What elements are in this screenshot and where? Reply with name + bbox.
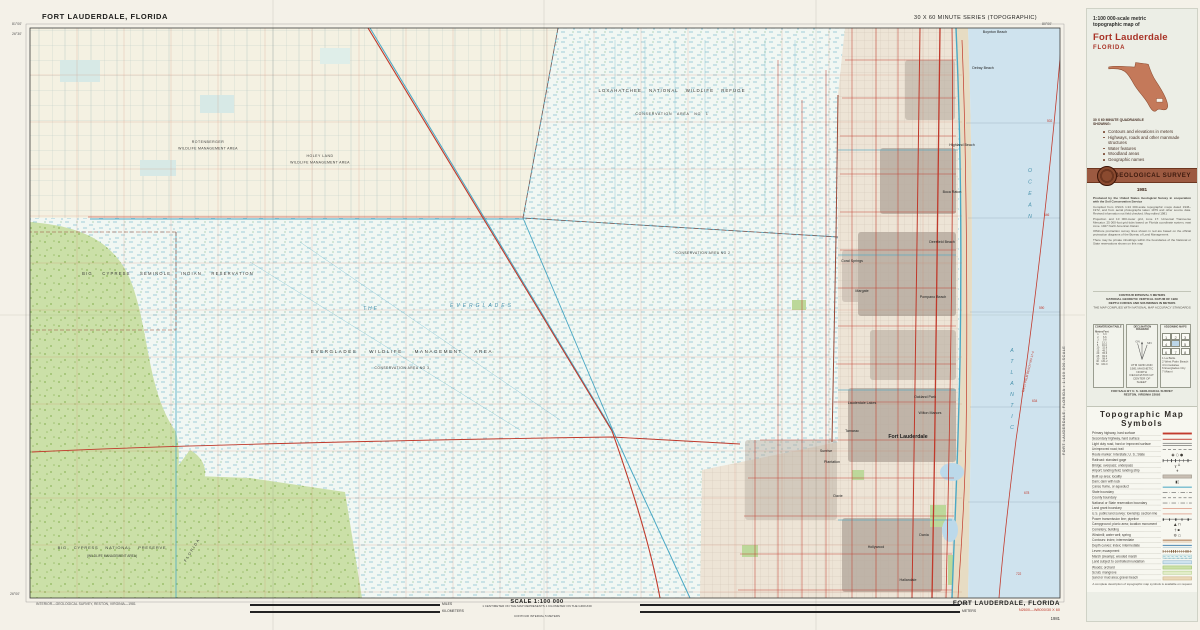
city-label: Delray Beach [972, 66, 994, 70]
map-label: (WILDLIFE MANAGEMENT AREA) [87, 554, 137, 558]
symbol-label: Depth curves: index; intermediate [1092, 544, 1161, 548]
map-label: 722 [1016, 572, 1022, 576]
city-label: Lauderdale Lakes [848, 401, 877, 405]
adjoining-cell: 3 [1181, 333, 1190, 340]
symbol-row: U.S. public land survey: township; secti… [1092, 511, 1192, 516]
city-label: Davie [833, 494, 842, 498]
map-label: N [1010, 392, 1014, 398]
city-label: Boca Raton [943, 190, 962, 194]
corner-lat-tl: 26°30' [12, 32, 22, 36]
symbol-label: State boundary [1092, 490, 1161, 494]
symbol-swatch-icon: ✈ [1163, 469, 1192, 473]
symbol-row: County boundary [1092, 495, 1192, 500]
symbol-swatch-icon [1163, 511, 1192, 515]
conversion-table: CONVERSION TABLE MetersFeet13.326.639.84… [1093, 324, 1124, 388]
symbol-swatch-icon: ▮▯ [1163, 479, 1192, 483]
map-cover-panel: 1:100 000-scale metric topographic map o… [1086, 8, 1198, 622]
symbol-row: Primary highway, hard surface [1092, 431, 1192, 436]
map-label: A [1009, 348, 1014, 354]
map-label: E [1028, 191, 1032, 197]
symbol-swatch-icon [1163, 544, 1192, 548]
symbol-row: Dam; dam with lock▮▯ [1092, 479, 1192, 484]
symbol-label: Land subject to controlled inundation [1092, 560, 1161, 564]
symbol-row: Campground; picnic area; location monume… [1092, 522, 1192, 527]
credit-paragraph: Projection and 10 000-meter grid, zone 1… [1093, 218, 1191, 228]
symbol-swatch-icon [1163, 571, 1192, 575]
symbol-row: Route marker: Interstate; U. S.; State◉ … [1092, 452, 1192, 457]
scalebar-meters: METERS [640, 611, 960, 613]
map-label: 546 [1044, 213, 1050, 217]
svg-text:MN: MN [1147, 342, 1152, 346]
map-label: CONSERVATION AREA NO 3 [375, 366, 430, 370]
florida-inset-map [1106, 55, 1178, 115]
adjoining-cell: 7 [1171, 348, 1180, 355]
symbol-label: Land grant boundary [1092, 506, 1161, 510]
symbol-label: Dam; dam with lock [1092, 479, 1161, 483]
symbol-label: Campground; picnic area; location monume… [1092, 522, 1161, 526]
cover-year: 1981 [1093, 187, 1191, 192]
sheet-title-topleft: FORT LAUDERDALE, FLORIDA [42, 12, 168, 21]
quad-note: 30 X 60 MINUTE QUADRANGLESHOWING: [1093, 118, 1191, 126]
symbol-row: Depth curves: index; intermediate [1092, 543, 1192, 548]
cover-feature-list: Contours and elevations in metersHighway… [1103, 129, 1191, 163]
accuracy-statement: THE MAP COMPLIES WITH NATIONAL MAP ACCUR… [1093, 306, 1191, 309]
map-label: WILDLIFE MANAGEMENT AREA [290, 161, 350, 165]
declination-arrows-icon: GN MN [1131, 337, 1153, 363]
symbol-label: Bridge; overpass; underpass [1092, 463, 1161, 467]
map-label: 502 [1047, 119, 1053, 123]
agency-name: GEOLOGICAL SURVEY [1114, 172, 1191, 179]
symbol-swatch-icon [1163, 576, 1192, 580]
symbol-label: Sand or mud area; gravel beach [1092, 576, 1161, 580]
symbol-row: Bridge; overpass; underpass╥ ╨ [1092, 463, 1192, 468]
symbol-label: National or State reservation boundary [1092, 501, 1161, 505]
symbol-swatch-icon [1163, 565, 1192, 569]
credit-paragraph: Produced by the United States Geological… [1093, 197, 1191, 204]
symbol-label: Route marker: Interstate; U. S.; State [1092, 453, 1161, 457]
symbol-row: Woods; orchard [1092, 564, 1192, 569]
symbol-row: Secondary highway, hard surface [1092, 436, 1192, 441]
symbol-swatch-icon: ▲ ⊓ [1163, 522, 1192, 526]
adjoining-grid: 12345678 [1162, 333, 1190, 355]
scalebar-miles: MILES [250, 604, 440, 606]
symbol-label: Woods; orchard [1092, 565, 1161, 569]
map-label: A [1027, 203, 1032, 209]
symbol-label: Canal, flume, or aqueduct [1092, 485, 1161, 489]
scalebar-km: KILOMETERS [250, 611, 440, 613]
series-title: 30 X 60 MINUTE SERIES (TOPOGRAPHIC) [914, 15, 1037, 21]
corner-lon-tr: 80°00' [1042, 22, 1052, 26]
symbol-label: Marsh (swamp); wooded marsh [1092, 554, 1161, 558]
symbol-swatch-icon [1163, 495, 1192, 499]
scale-note-1: 1 CENTIMETER ON THE MAP REPRESENTS 1 KIL… [452, 605, 622, 609]
symbol-label: Windmill; water well; spring [1092, 533, 1161, 537]
symbol-row: Contours: index; intermediate [1092, 538, 1192, 543]
symbol-swatch-icon [1163, 458, 1192, 462]
symbol-row: Land grant boundary [1092, 506, 1192, 511]
symbols-list: Primary highway, hard surfaceSecondary h… [1092, 431, 1192, 581]
city-label: Plantation [824, 460, 840, 464]
symbol-row: Airport; landing field; landing strip✈ [1092, 468, 1192, 473]
adjoining-cell: 2 [1171, 333, 1180, 340]
symbol-row: Unimproved road; trail [1092, 447, 1192, 452]
symbol-label: U.S. public land survey: township; secti… [1092, 511, 1161, 515]
map-label: L [1011, 370, 1014, 376]
cover-state: FLORIDA [1093, 45, 1191, 51]
adjoining-cell: 5 [1181, 340, 1190, 347]
symbol-row: Levee; escarpment [1092, 548, 1192, 553]
city-label: Hallandale [900, 578, 917, 582]
map-label: EVERGLADES WILDLIFE MANAGEMENT AREA [311, 349, 493, 354]
credit-paragraph: Compiled from USGS 1:24 000-scale topogr… [1093, 205, 1191, 215]
city-label: Hollywood [868, 545, 885, 549]
scale-statement: SCALE 1:100 000 1 CENTIMETER ON THE MAP … [452, 599, 622, 625]
symbol-swatch-icon [1163, 447, 1192, 451]
map-label: BIG CYPRESS NATIONAL PRESERVE [58, 545, 167, 550]
map-label: LOXAHATCHEE NATIONAL WILDLIFE REFUGE [598, 88, 745, 93]
contour-line: CONTOUR INTERVAL 5 METERS [1093, 294, 1191, 297]
adjoining-cell: 1 [1162, 333, 1171, 340]
symbol-swatch-icon [1163, 554, 1192, 558]
city-label: Coral Springs [841, 259, 863, 263]
city-label: Oakland Park [914, 395, 936, 399]
credit-paragraph: Offshore protraction survey lines shown … [1093, 230, 1191, 237]
map-label: 590 [1039, 306, 1045, 310]
symbol-row: Marsh (swamp); wooded marsh [1092, 554, 1192, 559]
usgs-seal-icon [1097, 166, 1117, 186]
symbol-row: Light duty road, hard or improved surfac… [1092, 441, 1192, 446]
contour-line: NATIONAL GEODETIC VERTICAL DATUM OF 1929 [1093, 297, 1191, 300]
declination-diagram: DECLINATION DIAGRAM GN MN UTM GRID AND 1… [1126, 324, 1157, 388]
map-sheet: LOXAHATCHEE NATIONAL WILDLIFE REFUGECONS… [0, 0, 1200, 630]
corner-lat-bl: 26°00' [10, 592, 20, 596]
symbol-swatch-icon [1163, 549, 1192, 553]
cover-feature-item: Geographic names [1103, 157, 1191, 163]
conversion-row: 50164.0 [1095, 363, 1109, 366]
map-label: CONSERVATION AREA NO 2 [676, 251, 731, 255]
symbol-swatch-icon [1163, 517, 1192, 521]
sheet-year: 1981 [953, 616, 1060, 621]
map-label: 678 [1024, 491, 1030, 495]
city-label: Boynton Beach [983, 30, 1007, 34]
adjoining-cell: 8 [1181, 348, 1190, 355]
edge-fold-label: FORT LAUDERDALE, FLORIDA • 1:100 000-SCA… [1062, 315, 1066, 455]
scalebar-unit: MILES [442, 602, 452, 606]
symbol-swatch-icon [1163, 506, 1192, 510]
symbol-swatch-icon: † ▪ [1163, 528, 1192, 532]
symbol-row: State boundary [1092, 489, 1192, 494]
adjoining-cell [1171, 340, 1180, 347]
symbol-label: Airport; landing field; landing strip [1092, 469, 1161, 473]
symbol-row: Cemetery; building† ▪ [1092, 527, 1192, 532]
city-label: Tamarac [845, 429, 859, 433]
sheet-id-block: FORT LAUDERDALE, FLORIDA N2600—W8000/30 … [953, 600, 1060, 621]
contour-line: DEPTH CURVES AND SOUNDINGS IN METERS [1093, 301, 1191, 304]
symbol-swatch-icon [1163, 538, 1192, 542]
map-label: THE [363, 306, 379, 312]
map-label: A [1009, 381, 1014, 387]
symbol-label: Scrub; mangrove [1092, 570, 1161, 574]
symbol-label: Built up area; locality [1092, 474, 1161, 478]
city-label: Highland Beach [949, 143, 974, 147]
symbol-row: Windmill; water well; spring⚙ ○ [1092, 532, 1192, 537]
city-label: Fort Lauderdale [888, 434, 927, 440]
map-label: C [1028, 180, 1032, 186]
city-label: Pompano Beach [920, 295, 947, 299]
symbol-swatch-icon [1163, 490, 1192, 494]
symbol-label: Primary highway, hard surface [1092, 431, 1161, 435]
symbol-row: National or State reservation boundary [1092, 500, 1192, 505]
scalebar-feet: FEET [640, 604, 960, 606]
city-label: Dania [919, 533, 928, 537]
map-label: EVERGLADES [450, 303, 514, 309]
reference-boxes: CONVERSION TABLE MetersFeet13.326.639.84… [1093, 324, 1191, 388]
svg-text:GN: GN [1135, 340, 1139, 344]
map-label: WILDLIFE MANAGEMENT AREA [178, 147, 238, 151]
map-label: C [1010, 425, 1014, 431]
map-label: O [1028, 168, 1032, 174]
city-label: Margate [855, 289, 868, 293]
symbol-swatch-icon [1163, 474, 1192, 478]
symbol-label: Contours: index; intermediate [1092, 538, 1161, 542]
symbol-label: Unimproved road; trail [1092, 447, 1161, 451]
cover-title-block: 1:100 000-scale metric topographic map o… [1093, 16, 1191, 51]
symbol-swatch-icon [1163, 431, 1192, 435]
symbol-swatch-icon: ⚙ ○ [1163, 533, 1192, 537]
symbols-title: Topographic Map Symbols [1092, 410, 1192, 428]
symbols-legend: Topographic Map Symbols Primary highway,… [1087, 406, 1197, 592]
symbol-row: Sand or mud area; gravel beach [1092, 575, 1192, 580]
symbol-swatch-icon: ╥ ╨ [1163, 463, 1192, 467]
adjoining-cell: 4 [1162, 340, 1171, 347]
geological-survey-banner: GEOLOGICAL SURVEY [1087, 168, 1197, 183]
cover-feature-item: Highways, roads and other manmade struct… [1103, 135, 1191, 146]
symbol-row: Power transmission line; pipeline [1092, 516, 1192, 521]
symbol-label: Power transmission line; pipeline [1092, 517, 1161, 521]
adjoining-cell: 6 [1162, 348, 1171, 355]
symbol-row: Land subject to controlled inundation [1092, 559, 1192, 564]
symbol-label: Cemetery; building [1092, 528, 1161, 532]
symbol-label: Railroad: standard gage [1092, 458, 1161, 462]
symbol-row: Built up area; locality [1092, 473, 1192, 478]
cover-map-name: Fort Lauderdale [1093, 32, 1191, 43]
map-label: ROTENBERGER [192, 140, 225, 144]
corner-lon-tl: 81°00' [12, 22, 22, 26]
sheet-designation: N2600—W8000/30 X 60 [953, 608, 1060, 612]
symbol-swatch-icon: ◉ ○ ● [1163, 453, 1192, 457]
sale-line: RESTON, VIRGINIA 22092 [1093, 393, 1191, 396]
symbols-note: A complete description of topographic ma… [1092, 583, 1192, 586]
symbol-swatch-icon [1163, 560, 1192, 564]
city-label: Wilton Manors [919, 411, 942, 415]
credits-block: Produced by the United States Geological… [1093, 197, 1191, 291]
symbol-label: County boundary [1092, 495, 1161, 499]
symbol-label: Light duty road, hard or improved surfac… [1092, 442, 1161, 446]
symbol-swatch-icon [1163, 443, 1192, 445]
credit-paragraph: There may be private inholdings within t… [1093, 239, 1191, 246]
map-label: HOLEY LAND [306, 154, 333, 158]
contour-statement: CONTOUR INTERVAL 5 METERSNATIONAL GEODET… [1093, 291, 1191, 321]
quad-location-marker [1156, 99, 1162, 103]
imprint-line: INTERIOR—GEOLOGICAL SURVEY, RESTON, VIRG… [36, 602, 136, 606]
symbol-swatch-icon [1163, 437, 1192, 441]
fold-crease [0, 314, 1085, 316]
cover-title-line2: topographic map of [1093, 22, 1191, 28]
symbol-row: Canal, flume, or aqueduct [1092, 484, 1192, 489]
scale-note-2: CONTOUR INTERVAL 5 METERS [452, 615, 622, 619]
city-label: Sunrise [820, 449, 832, 453]
map-label: CONSERVATION AREA NO 1 [635, 112, 708, 116]
map-label: 634 [1032, 399, 1038, 403]
sheet-name: FORT LAUDERDALE, FLORIDA [953, 600, 1060, 607]
map-label: BIG CYPRESS SEMINOLE INDIAN RESERVATION [82, 271, 254, 276]
map-label: N [1028, 214, 1032, 220]
symbol-label: Levee; escarpment [1092, 549, 1161, 553]
symbol-swatch-icon [1163, 501, 1192, 505]
symbol-swatch-icon [1163, 485, 1192, 489]
sale-statement: FOR SALE BY U. S. GEOLOGICAL SURVEYRESTO… [1093, 390, 1191, 403]
symbol-row: Scrub; mangrove [1092, 570, 1192, 575]
symbol-label: Secondary highway, hard surface [1092, 437, 1161, 441]
adjoining-maps: ADJOINING MAPS 12345678 1 La Belle2 West… [1160, 324, 1191, 388]
adjoining-key: 1 La Belle2 West Palm Beach4 Immokalee6 … [1162, 357, 1189, 374]
city-label: Deerfield Beach [929, 240, 955, 244]
adjoining-key-item: 7 Miami [1162, 371, 1189, 374]
symbol-row: Railroad: standard gage [1092, 457, 1192, 462]
